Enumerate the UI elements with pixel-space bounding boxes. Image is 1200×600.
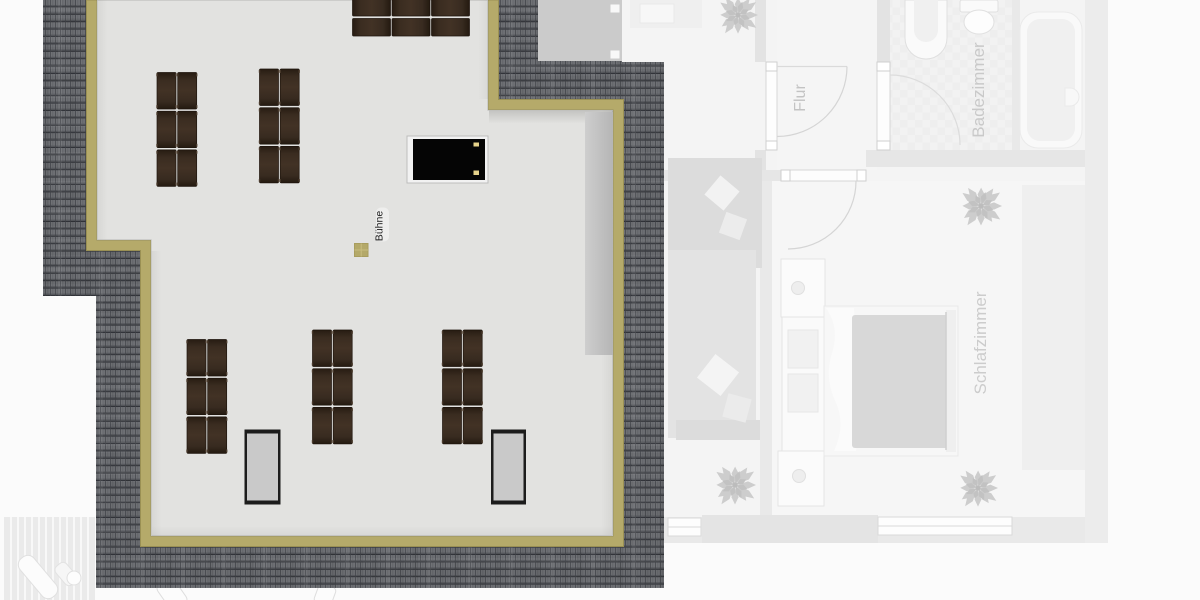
svg-text:Flur: Flur bbox=[792, 84, 809, 112]
svg-text:Schlafzimmer: Schlafzimmer bbox=[971, 291, 990, 394]
svg-text:Badezimmer: Badezimmer bbox=[969, 42, 988, 138]
svg-text:Bühne: Bühne bbox=[374, 211, 386, 242]
